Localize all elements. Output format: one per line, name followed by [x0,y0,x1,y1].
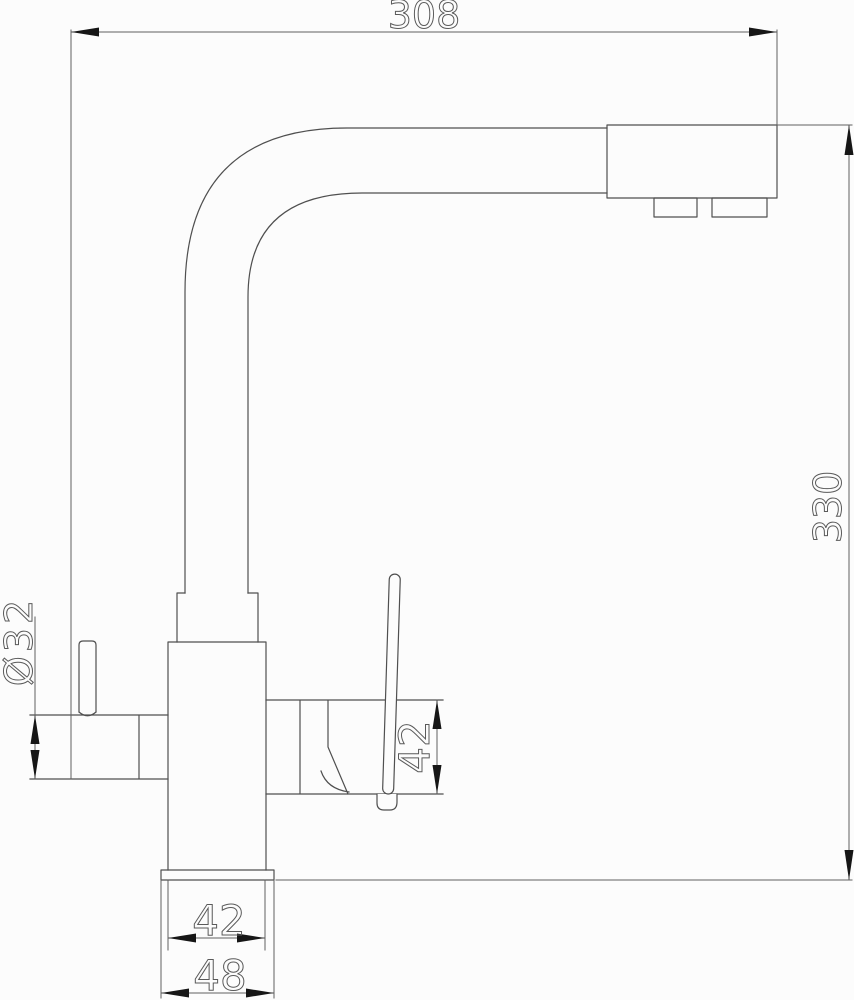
drawing-background [0,0,854,1000]
dim-label-42-base: 42 [192,896,245,945]
dim-label-330: 330 [806,471,850,544]
dim-label-308: 308 [388,0,461,37]
handle-lever-foot [377,794,397,810]
technical-drawing-canvas: 308 330 Ø32 42 42 48 [0,0,854,1000]
dim-label-48: 48 [193,951,246,1000]
faucet-dimension-diagram: 308 330 Ø32 42 42 48 [0,0,854,1000]
dim-label-diameter32: Ø32 [0,596,41,686]
dim-label-42-handle: 42 [390,720,439,773]
